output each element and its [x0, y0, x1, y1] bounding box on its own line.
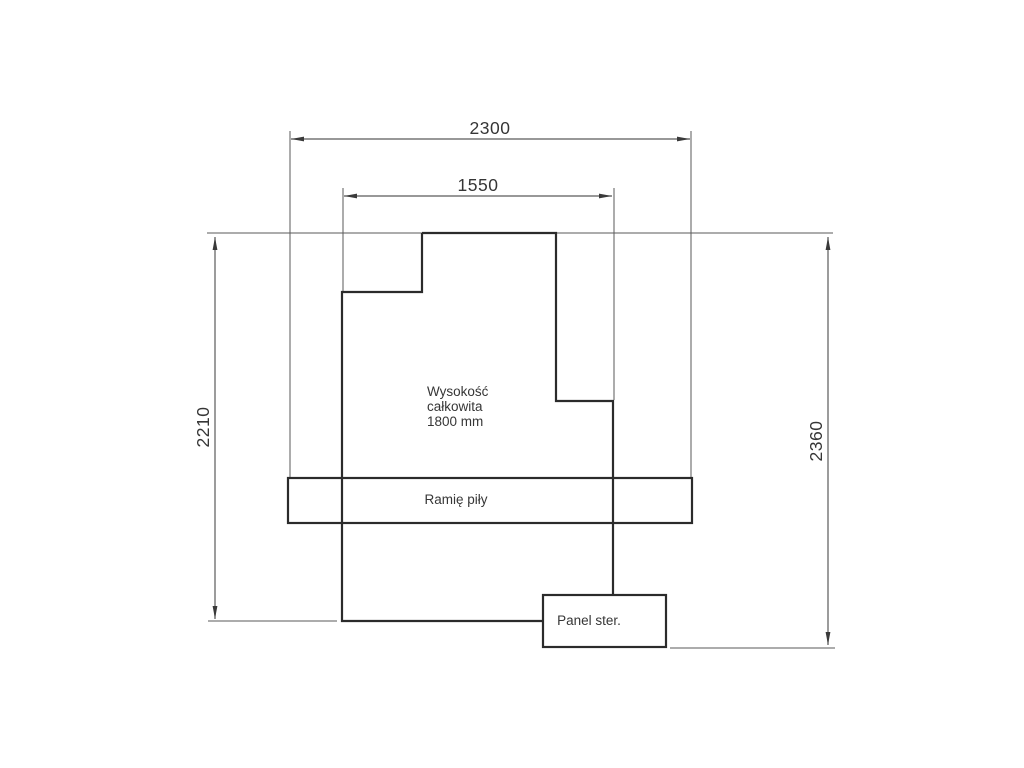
dimension-value-2300: 2300: [470, 118, 511, 138]
annotation-labels: Wysokość całkowita 1800 mm Ramię piły Pa…: [424, 384, 620, 628]
dimension-value-2360: 2360: [806, 421, 826, 462]
height-note-line2: całkowita: [427, 399, 483, 414]
saw-arm-label: Ramię piły: [424, 492, 487, 507]
dimension-lines: [215, 139, 828, 645]
drawing-canvas: 2300 1550 2210 2360 Wysokość całkowita 1…: [0, 0, 1024, 768]
machine-outline: [288, 233, 692, 647]
height-note-line3: 1800 mm: [427, 414, 483, 429]
machine-dimension-diagram: 2300 1550 2210 2360 Wysokość całkowita 1…: [0, 0, 1024, 768]
dimension-value-2210: 2210: [193, 407, 213, 448]
extension-lines: [207, 131, 835, 648]
dimension-value-1550: 1550: [458, 175, 499, 195]
control-panel-label: Panel ster.: [557, 613, 621, 628]
height-note-line1: Wysokość: [427, 384, 489, 399]
saw-arm-box: [288, 478, 692, 523]
dimension-labels: 2300 1550 2210 2360: [193, 118, 826, 461]
